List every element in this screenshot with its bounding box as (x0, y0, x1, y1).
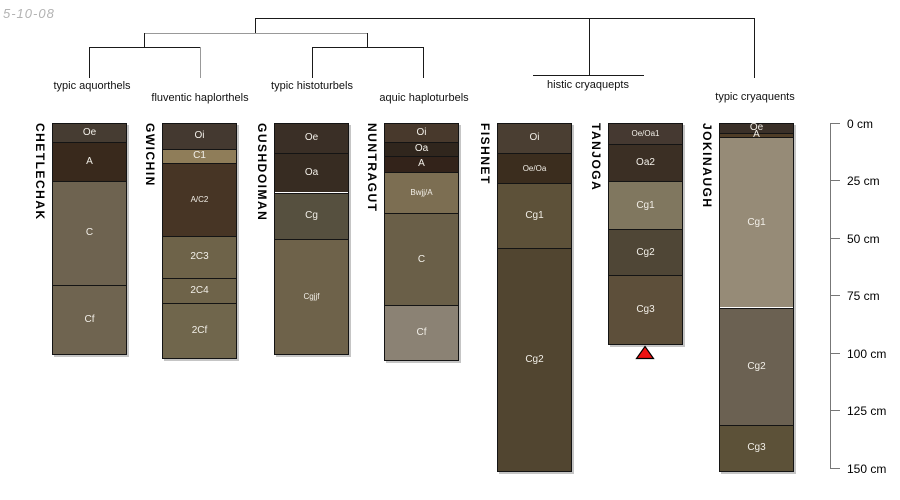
dendrogram-segment (144, 33, 368, 34)
horizon-gwichin-2c3: 2C3 (163, 236, 236, 277)
dendrogram-segment (367, 33, 368, 48)
soil-column-nuntragut: OiOaABwjj/ACCf (384, 123, 459, 362)
horizon-tanjoga-cg1: Cg1 (609, 181, 682, 229)
depth-tick-125 (830, 410, 840, 411)
dendrogram-segment (533, 75, 644, 76)
depth-tick-150 (830, 468, 840, 469)
depth-tick-75 (830, 295, 840, 296)
horizon-gushdoiman-oe: Oe (275, 124, 348, 154)
dendrogram-segment (89, 47, 90, 78)
horizon-gushdoiman-oa: Oa (275, 153, 348, 192)
horizon-tanjoga-cg2: Cg2 (609, 229, 682, 275)
dendrogram-segment (255, 18, 755, 19)
dendrogram-segment (89, 47, 201, 48)
taxon-label-typic-histoturbels: typic histoturbels (271, 80, 353, 92)
depth-tick-0 (830, 123, 840, 124)
horizon-chetlechak-c: C (53, 181, 126, 285)
depth-tick-label-125: 125 cm (847, 404, 886, 418)
horizon-chetlechak-a: A (53, 142, 126, 181)
depth-tick-25 (830, 180, 840, 181)
horizon-jokinaugh-cg1: Cg1 (720, 137, 793, 307)
column-name-fishnet: FISHNET (478, 123, 492, 185)
depth-tick-100 (830, 353, 840, 354)
column-name-tanjoga: TANJOGA (589, 123, 603, 191)
depth-tick-label-75: 75 cm (847, 289, 880, 303)
horizon-fishnet-oe-oa: Oe/Oa (498, 153, 571, 183)
horizon-gwichin-oi: Oi (163, 124, 236, 149)
horizon-chetlechak-cf: Cf (53, 285, 126, 354)
horizon-fishnet-oi: Oi (498, 124, 571, 154)
dendrogram-segment (144, 33, 145, 48)
column-name-gushdoiman: GUSHDOIMAN (255, 123, 269, 221)
column-name-gwichin: GWICHIN (143, 123, 157, 187)
horizon-nuntragut-oi: Oi (385, 124, 458, 142)
horizon-gwichin-c1: C1 (163, 149, 236, 163)
horizon-gwichin-2cf: 2Cf (163, 303, 236, 358)
dendrogram-segment (754, 18, 755, 78)
depth-tick-50 (830, 238, 840, 239)
horizon-nuntragut-cf: Cf (385, 305, 458, 360)
horizon-jokinaugh-cg3: Cg3 (720, 425, 793, 471)
dendrogram-segment (255, 18, 256, 34)
dendrogram-segment (312, 47, 424, 48)
column-name-jokinaugh: JOKINAUGH (700, 123, 714, 209)
taxon-label-aquic-haploturbels: aquic haploturbels (379, 92, 468, 104)
soil-column-chetlechak: OeACCf (52, 123, 127, 355)
soil-profile-figure: 5-10-08 typic aquorthelsfluventic haplor… (0, 0, 900, 500)
soil-column-jokinaugh: OeACg1Cg2Cg3 (719, 123, 794, 472)
horizon-jokinaugh-cg2: Cg2 (720, 308, 793, 425)
dendrogram-segment (423, 47, 424, 78)
horizon-chetlechak-oe: Oe (53, 124, 126, 142)
horizon-nuntragut-oa: Oa (385, 142, 458, 156)
soil-column-gushdoiman: OeOaCgCgjjf (274, 123, 349, 355)
taxon-label-typic-cryaquents: typic cryaquents (715, 91, 794, 103)
horizon-fishnet-cg1: Cg1 (498, 183, 571, 247)
depth-tick-label-50: 50 cm (847, 232, 880, 246)
column-name-chetlechak: CHETLECHAK (33, 123, 47, 221)
horizon-nuntragut-bwjj-a: Bwjj/A (385, 172, 458, 213)
taxon-label-typic-aquorthels: typic aquorthels (53, 80, 130, 92)
dendrogram-segment (589, 18, 590, 76)
taxon-label-fluventic-haplorthels: fluventic haplorthels (151, 92, 248, 104)
depth-tick-label-0: 0 cm (847, 117, 873, 131)
horizon-nuntragut-a: A (385, 156, 458, 172)
horizon-nuntragut-c: C (385, 213, 458, 305)
soil-column-tanjoga: Oe/Oa1Oa2Cg1Cg2Cg3 (608, 123, 683, 346)
figure-date-label: 5-10-08 (3, 6, 55, 21)
soil-column-fishnet: OiOe/OaCg1Cg2 (497, 123, 572, 472)
horizon-fishnet-cg2: Cg2 (498, 248, 571, 471)
horizon-tanjoga-cg3: Cg3 (609, 275, 682, 344)
red-triangle-marker (635, 345, 655, 365)
horizon-gushdoiman-cgjjf: Cgjjf (275, 239, 348, 354)
horizon-tanjoga-oe-oa1: Oe/Oa1 (609, 124, 682, 145)
depth-tick-label-150: 150 cm (847, 462, 886, 476)
horizon-gwichin-a-c2: A/C2 (163, 163, 236, 237)
column-name-nuntragut: NUNTRAGUT (365, 123, 379, 213)
horizon-gwichin-2c4: 2C4 (163, 278, 236, 303)
depth-tick-label-25: 25 cm (847, 174, 880, 188)
dendrogram-segment (312, 47, 313, 78)
dendrogram-segment (200, 47, 201, 78)
horizon-gushdoiman-cg: Cg (275, 193, 348, 239)
depth-tick-label-100: 100 cm (847, 347, 886, 361)
taxon-label-histic-cryaquepts: histic cryaquepts (547, 79, 629, 91)
horizon-tanjoga-oa2: Oa2 (609, 144, 682, 181)
soil-column-gwichin: OiC1A/C22C32C42Cf (162, 123, 237, 360)
